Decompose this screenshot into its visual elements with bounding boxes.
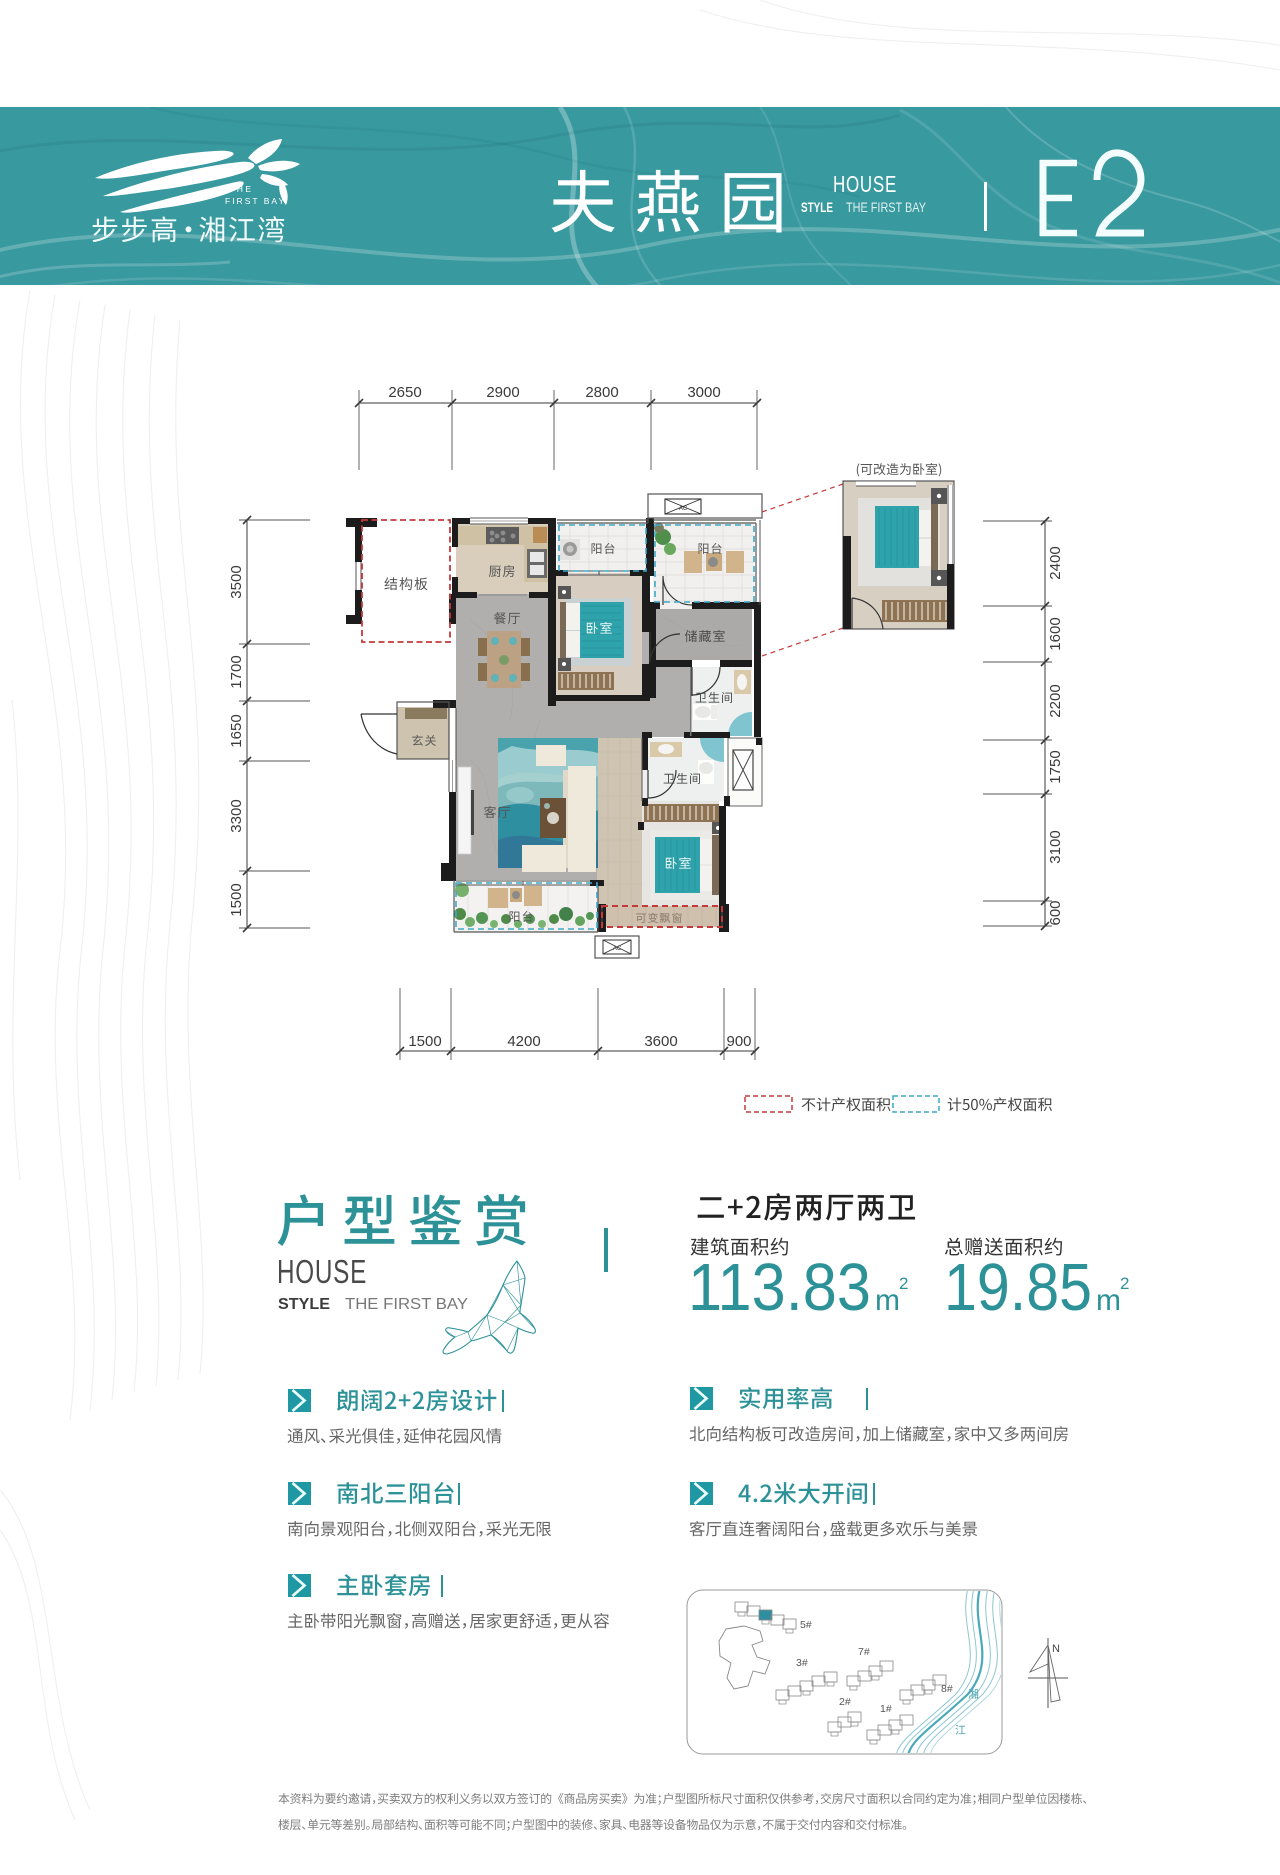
svg-text:HOUSE: HOUSE xyxy=(277,1253,367,1290)
svg-text:8#: 8# xyxy=(941,1683,953,1695)
svg-text:2900: 2900 xyxy=(486,384,519,401)
svg-text:1600: 1600 xyxy=(1047,617,1064,650)
svg-text:2: 2 xyxy=(1120,1274,1129,1293)
svg-text:N: N xyxy=(1052,1643,1060,1655)
svg-text:STYLE: STYLE xyxy=(278,1296,330,1313)
svg-text:FIRST BAY: FIRST BAY xyxy=(225,196,286,206)
svg-text:19.85: 19.85 xyxy=(944,1250,1092,1325)
svg-text:2650: 2650 xyxy=(388,384,421,401)
svg-text:THE: THE xyxy=(229,184,254,194)
svg-text:STYLE: STYLE xyxy=(801,199,833,215)
svg-text:113.83: 113.83 xyxy=(688,1250,871,1325)
svg-text:2800: 2800 xyxy=(585,384,618,401)
svg-text:600: 600 xyxy=(1047,900,1064,925)
svg-text:900: 900 xyxy=(726,1033,751,1050)
svg-text:THE FIRST BAY: THE FIRST BAY xyxy=(846,200,926,215)
svg-text:2#: 2# xyxy=(839,1696,851,1708)
svg-text:3600: 3600 xyxy=(644,1033,677,1050)
svg-text:1500: 1500 xyxy=(228,883,245,916)
svg-text:2: 2 xyxy=(899,1274,908,1293)
svg-text:3#: 3# xyxy=(796,1657,808,1669)
svg-text:1#: 1# xyxy=(880,1703,892,1715)
svg-text:1750: 1750 xyxy=(1047,750,1064,783)
svg-text:1700: 1700 xyxy=(228,655,245,688)
svg-text:3100: 3100 xyxy=(1047,830,1064,863)
svg-text:m: m xyxy=(875,1284,900,1317)
svg-text:2400: 2400 xyxy=(1047,546,1064,579)
svg-text:3000: 3000 xyxy=(687,384,720,401)
svg-text:3300: 3300 xyxy=(228,799,245,832)
svg-text:3500: 3500 xyxy=(228,565,245,598)
svg-text:HOUSE: HOUSE xyxy=(833,171,897,197)
svg-text:AC: AC xyxy=(613,946,622,952)
svg-text:2200: 2200 xyxy=(1047,684,1064,717)
svg-text:4200: 4200 xyxy=(507,1033,540,1050)
svg-text:1500: 1500 xyxy=(408,1033,441,1050)
svg-text:7#: 7# xyxy=(858,1646,870,1658)
svg-text:5#: 5# xyxy=(800,1619,812,1631)
svg-text:1650: 1650 xyxy=(228,714,245,747)
svg-text:AC: AC xyxy=(679,506,688,512)
svg-text:m: m xyxy=(1096,1284,1121,1317)
svg-text:THE FIRST BAY: THE FIRST BAY xyxy=(345,1296,468,1313)
